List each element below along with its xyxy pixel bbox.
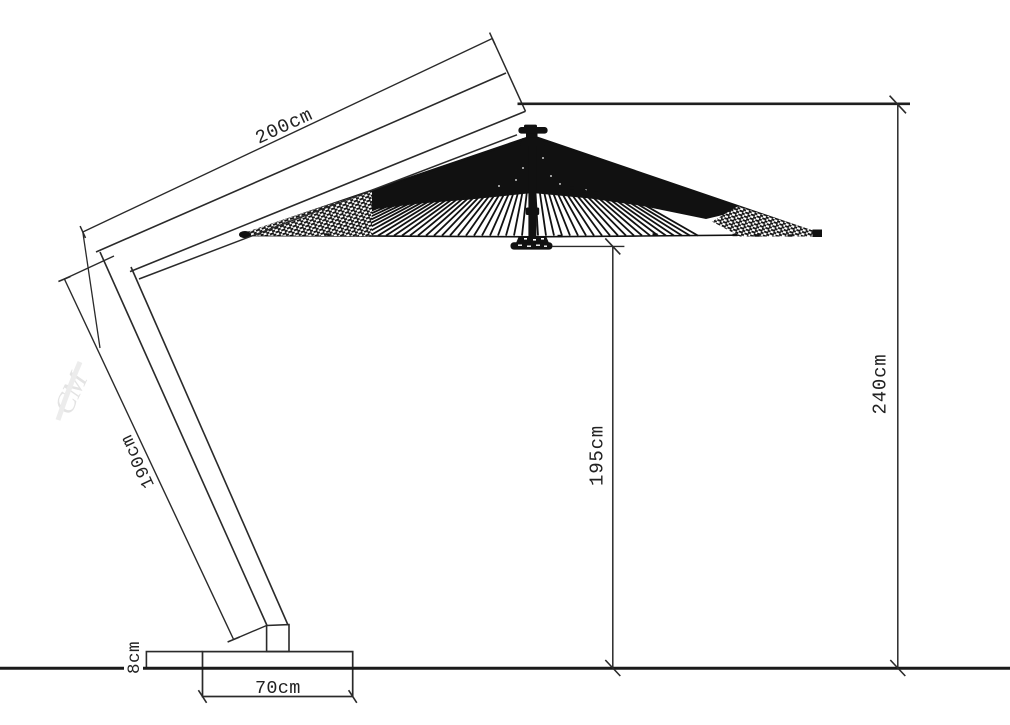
svg-text:240cm: 240cm — [870, 353, 892, 414]
svg-text:8cm: 8cm — [125, 641, 145, 674]
svg-text:195cm: 195cm — [587, 425, 609, 486]
svg-text:70cm: 70cm — [255, 678, 301, 699]
